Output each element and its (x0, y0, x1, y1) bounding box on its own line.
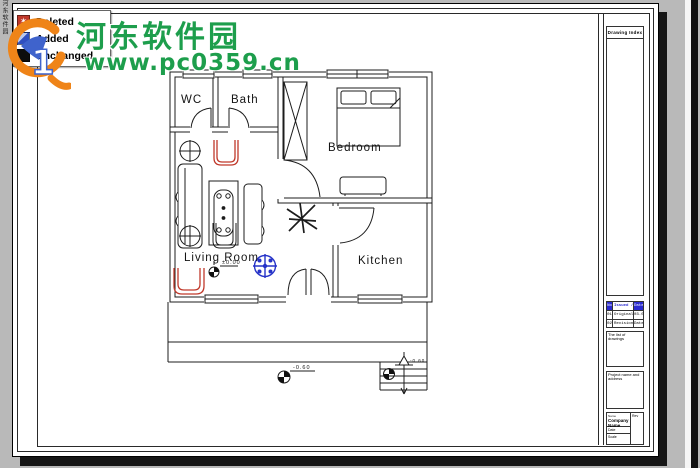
deleted-chair-bottom (174, 268, 204, 294)
legend-item-unchanged[interactable]: Unchanged (17, 48, 107, 63)
room-label-bath: Bath (231, 94, 259, 106)
drawings-list-label: The list of drawings (608, 333, 642, 341)
dresser (340, 177, 386, 196)
revision-header-row: No Issued / Sent Date (607, 302, 643, 311)
titleblock-index-box: Drawing Index (606, 26, 644, 296)
side-table (244, 184, 264, 244)
drawings-list-box: The list of drawings (606, 331, 644, 367)
room-label-bedroom: Bedroom (328, 142, 382, 154)
rev-cell: Rev (631, 413, 643, 444)
rev-col-date: Date (634, 302, 643, 310)
unchanged-icon (17, 49, 30, 62)
legend-label: Deleted (36, 16, 74, 28)
room-label-wc: WC (181, 94, 202, 106)
deleted-chair-top (214, 140, 238, 165)
revision-table: No Issued / Sent Date 01 Original 03.05 … (606, 301, 644, 328)
date-cell: Date (607, 427, 630, 434)
company-cell: Name Company Name (607, 413, 630, 427)
revision-row: 02 Revision / Change Date (607, 320, 643, 328)
porch-lines (168, 302, 427, 362)
dwg-compare-viewport: WC Bath Bedroom Living Room Kitchen ±0.0… (0, 0, 700, 468)
floor-plan-drawing: WC Bath Bedroom Living Room Kitchen ±0.0… (0, 0, 700, 468)
level-value-entry: -0.60 (410, 358, 425, 363)
plant-symbol (287, 203, 317, 233)
wardrobe (284, 82, 307, 160)
legend-item-deleted[interactable]: Deleted (17, 14, 107, 29)
room-label-kitchen: Kitchen (358, 255, 403, 267)
level-value-ground: -0.60 (293, 365, 311, 371)
level-value-living: ±0.00 (222, 260, 241, 266)
revision-row: 01 Original 03.05 (607, 311, 643, 320)
legend-label: Unchanged (36, 50, 93, 62)
deleted-icon (17, 15, 30, 28)
scale-cell: Scale (607, 434, 630, 440)
info-table: Name Company Name Date Scale Rev (606, 412, 644, 445)
added-icon (17, 32, 30, 45)
bed (337, 88, 400, 146)
project-box-label: Project name and address (608, 373, 642, 381)
window-edge-bar (691, 0, 698, 468)
legend-item-added[interactable]: Added (17, 31, 107, 46)
rev-col-issued: Issued / Sent (613, 302, 634, 310)
level-marker-ground (278, 371, 315, 383)
project-box: Project name and address (606, 371, 644, 409)
legend-label: Added (36, 33, 69, 45)
compare-legend: Deleted Added Unchanged (13, 10, 111, 67)
titleblock-header: Drawing Index (607, 27, 643, 39)
